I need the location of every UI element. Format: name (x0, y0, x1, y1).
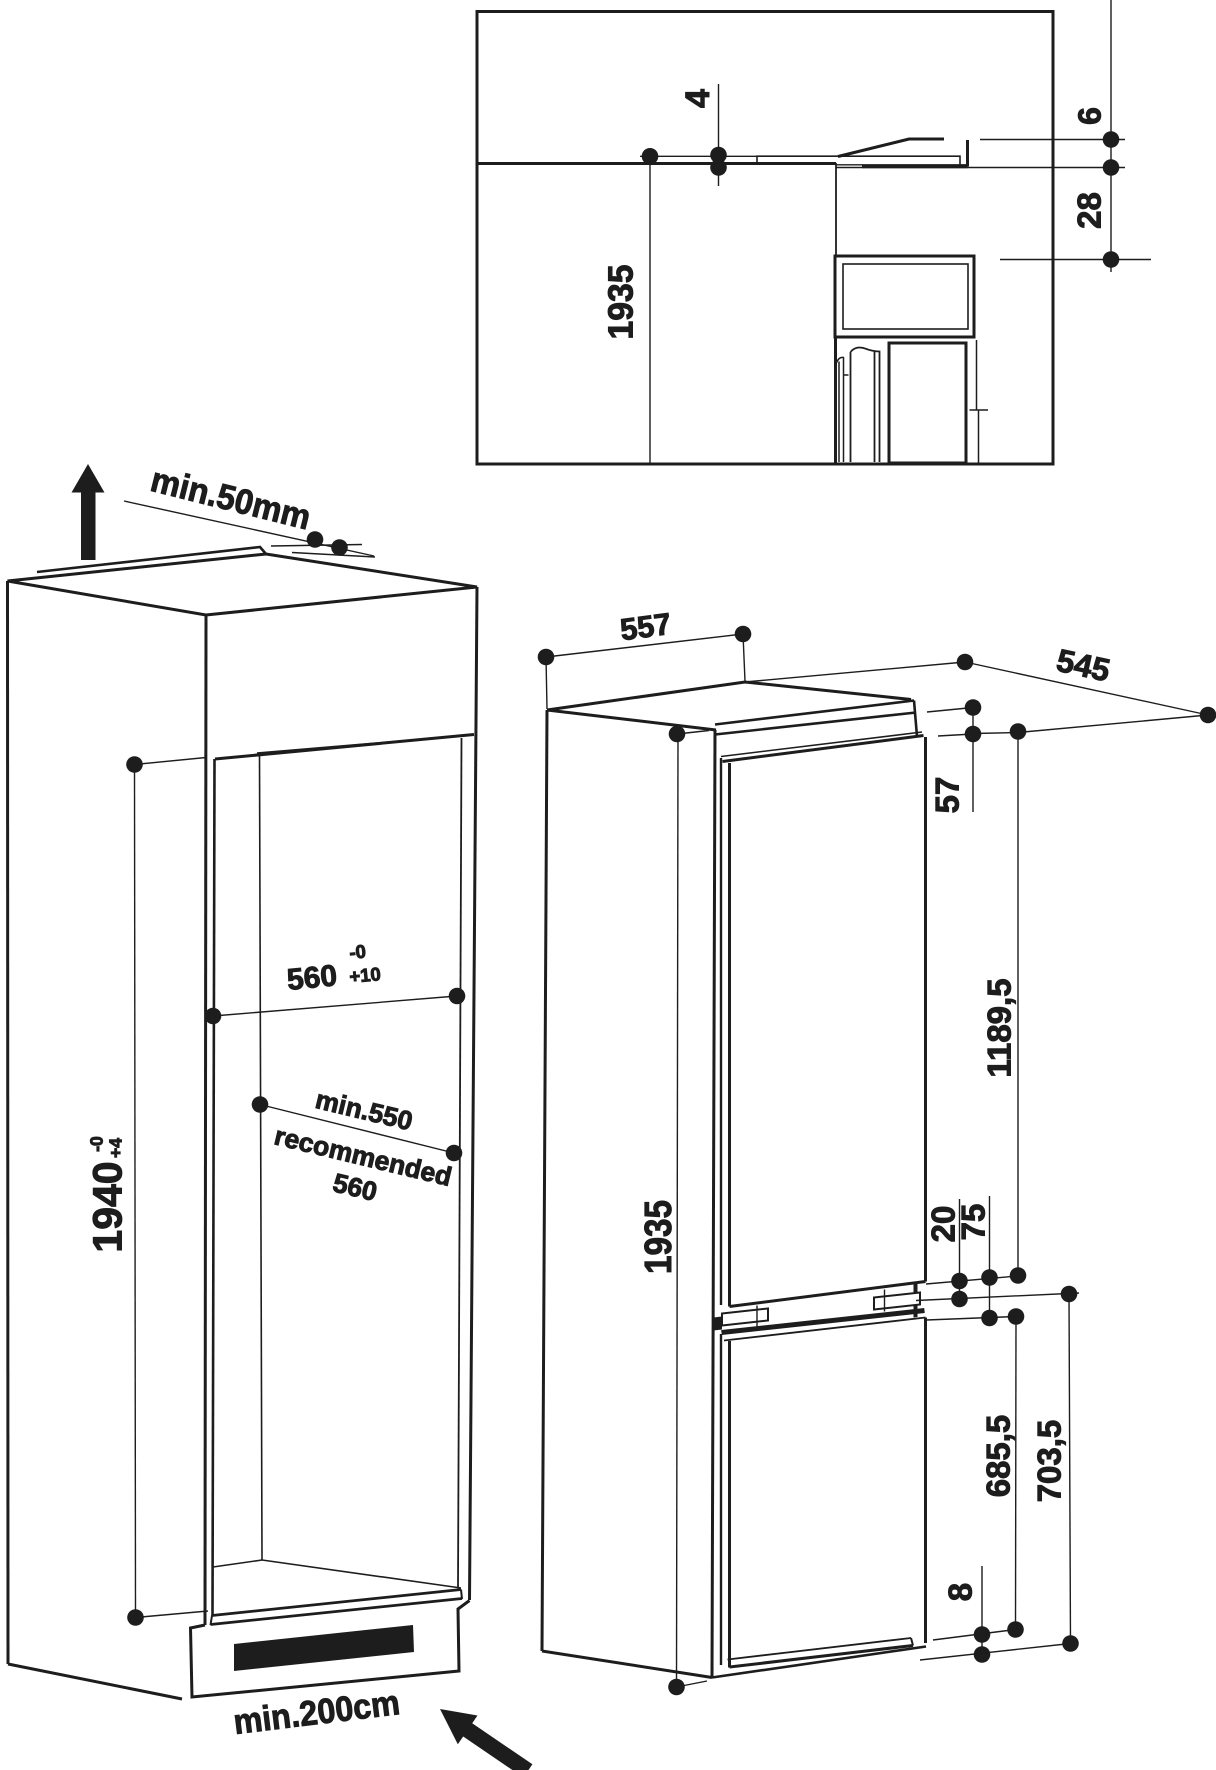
svg-text:28: 28 (1071, 192, 1108, 229)
svg-text:1940: 1940 (84, 1161, 130, 1252)
svg-text:703,5: 703,5 (1031, 1420, 1068, 1503)
svg-text:6: 6 (1071, 107, 1107, 125)
svg-text:min.50mm: min.50mm (147, 460, 315, 537)
svg-text:1189,5: 1189,5 (981, 978, 1018, 1077)
svg-text:75: 75 (955, 1204, 992, 1241)
svg-text:4: 4 (679, 89, 717, 108)
svg-text:+10: +10 (348, 963, 381, 987)
svg-text:1935: 1935 (601, 265, 640, 340)
svg-text:-0: -0 (87, 1136, 107, 1152)
svg-text:min.550: min.550 (313, 1084, 416, 1136)
svg-text:560: 560 (286, 959, 339, 997)
svg-text:+4: +4 (106, 1138, 126, 1158)
svg-text:557: 557 (618, 607, 673, 647)
svg-text:57: 57 (929, 777, 966, 814)
svg-text:545: 545 (1053, 642, 1113, 689)
svg-text:685,5: 685,5 (980, 1415, 1017, 1498)
svg-text:1935: 1935 (638, 1200, 680, 1274)
svg-text:8: 8 (942, 1583, 979, 1601)
svg-text:-0: -0 (348, 941, 366, 963)
